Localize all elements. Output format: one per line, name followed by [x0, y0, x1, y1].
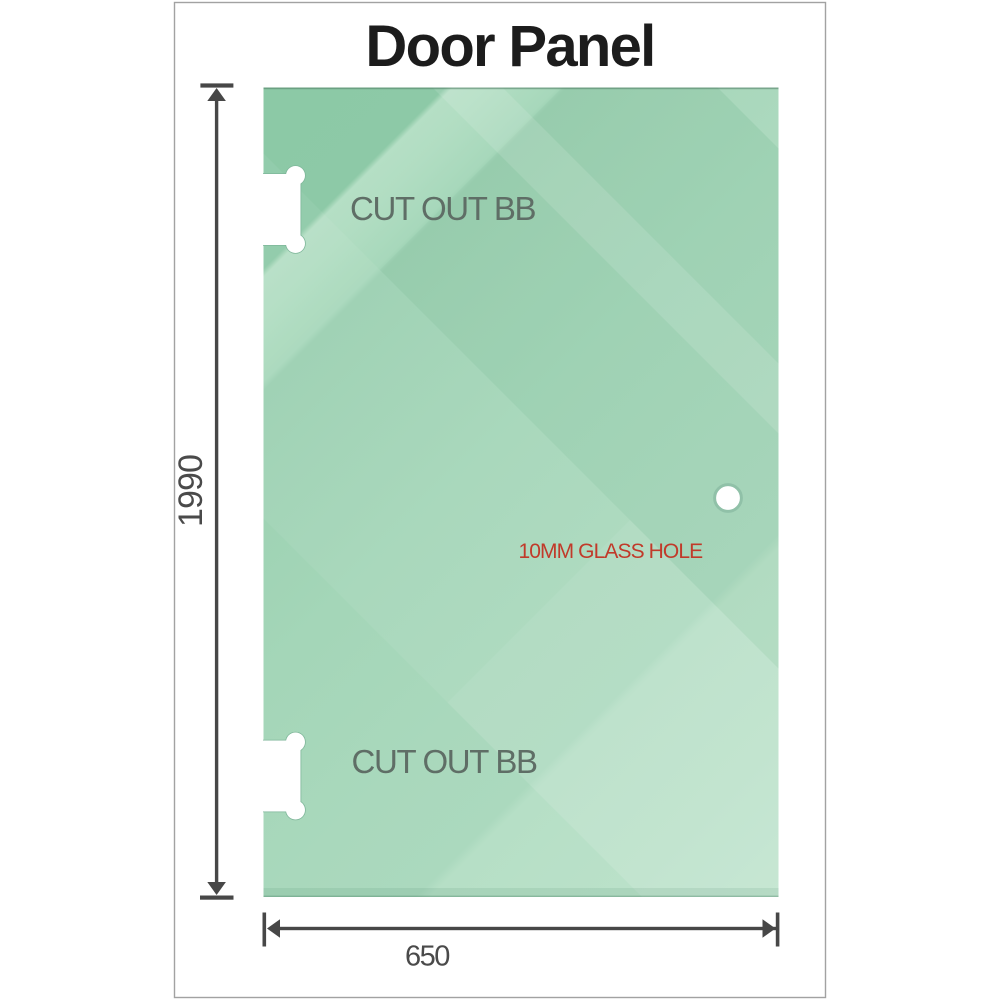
- svg-text:1990: 1990: [172, 455, 210, 527]
- svg-text:CUT OUT BB: CUT OUT BB: [350, 190, 535, 227]
- svg-text:CUT OUT BB: CUT OUT BB: [352, 743, 537, 780]
- svg-text:10MM GLASS HOLE: 10MM GLASS HOLE: [519, 540, 704, 563]
- svg-text:Door Panel: Door Panel: [365, 14, 654, 79]
- svg-text:650: 650: [405, 941, 449, 973]
